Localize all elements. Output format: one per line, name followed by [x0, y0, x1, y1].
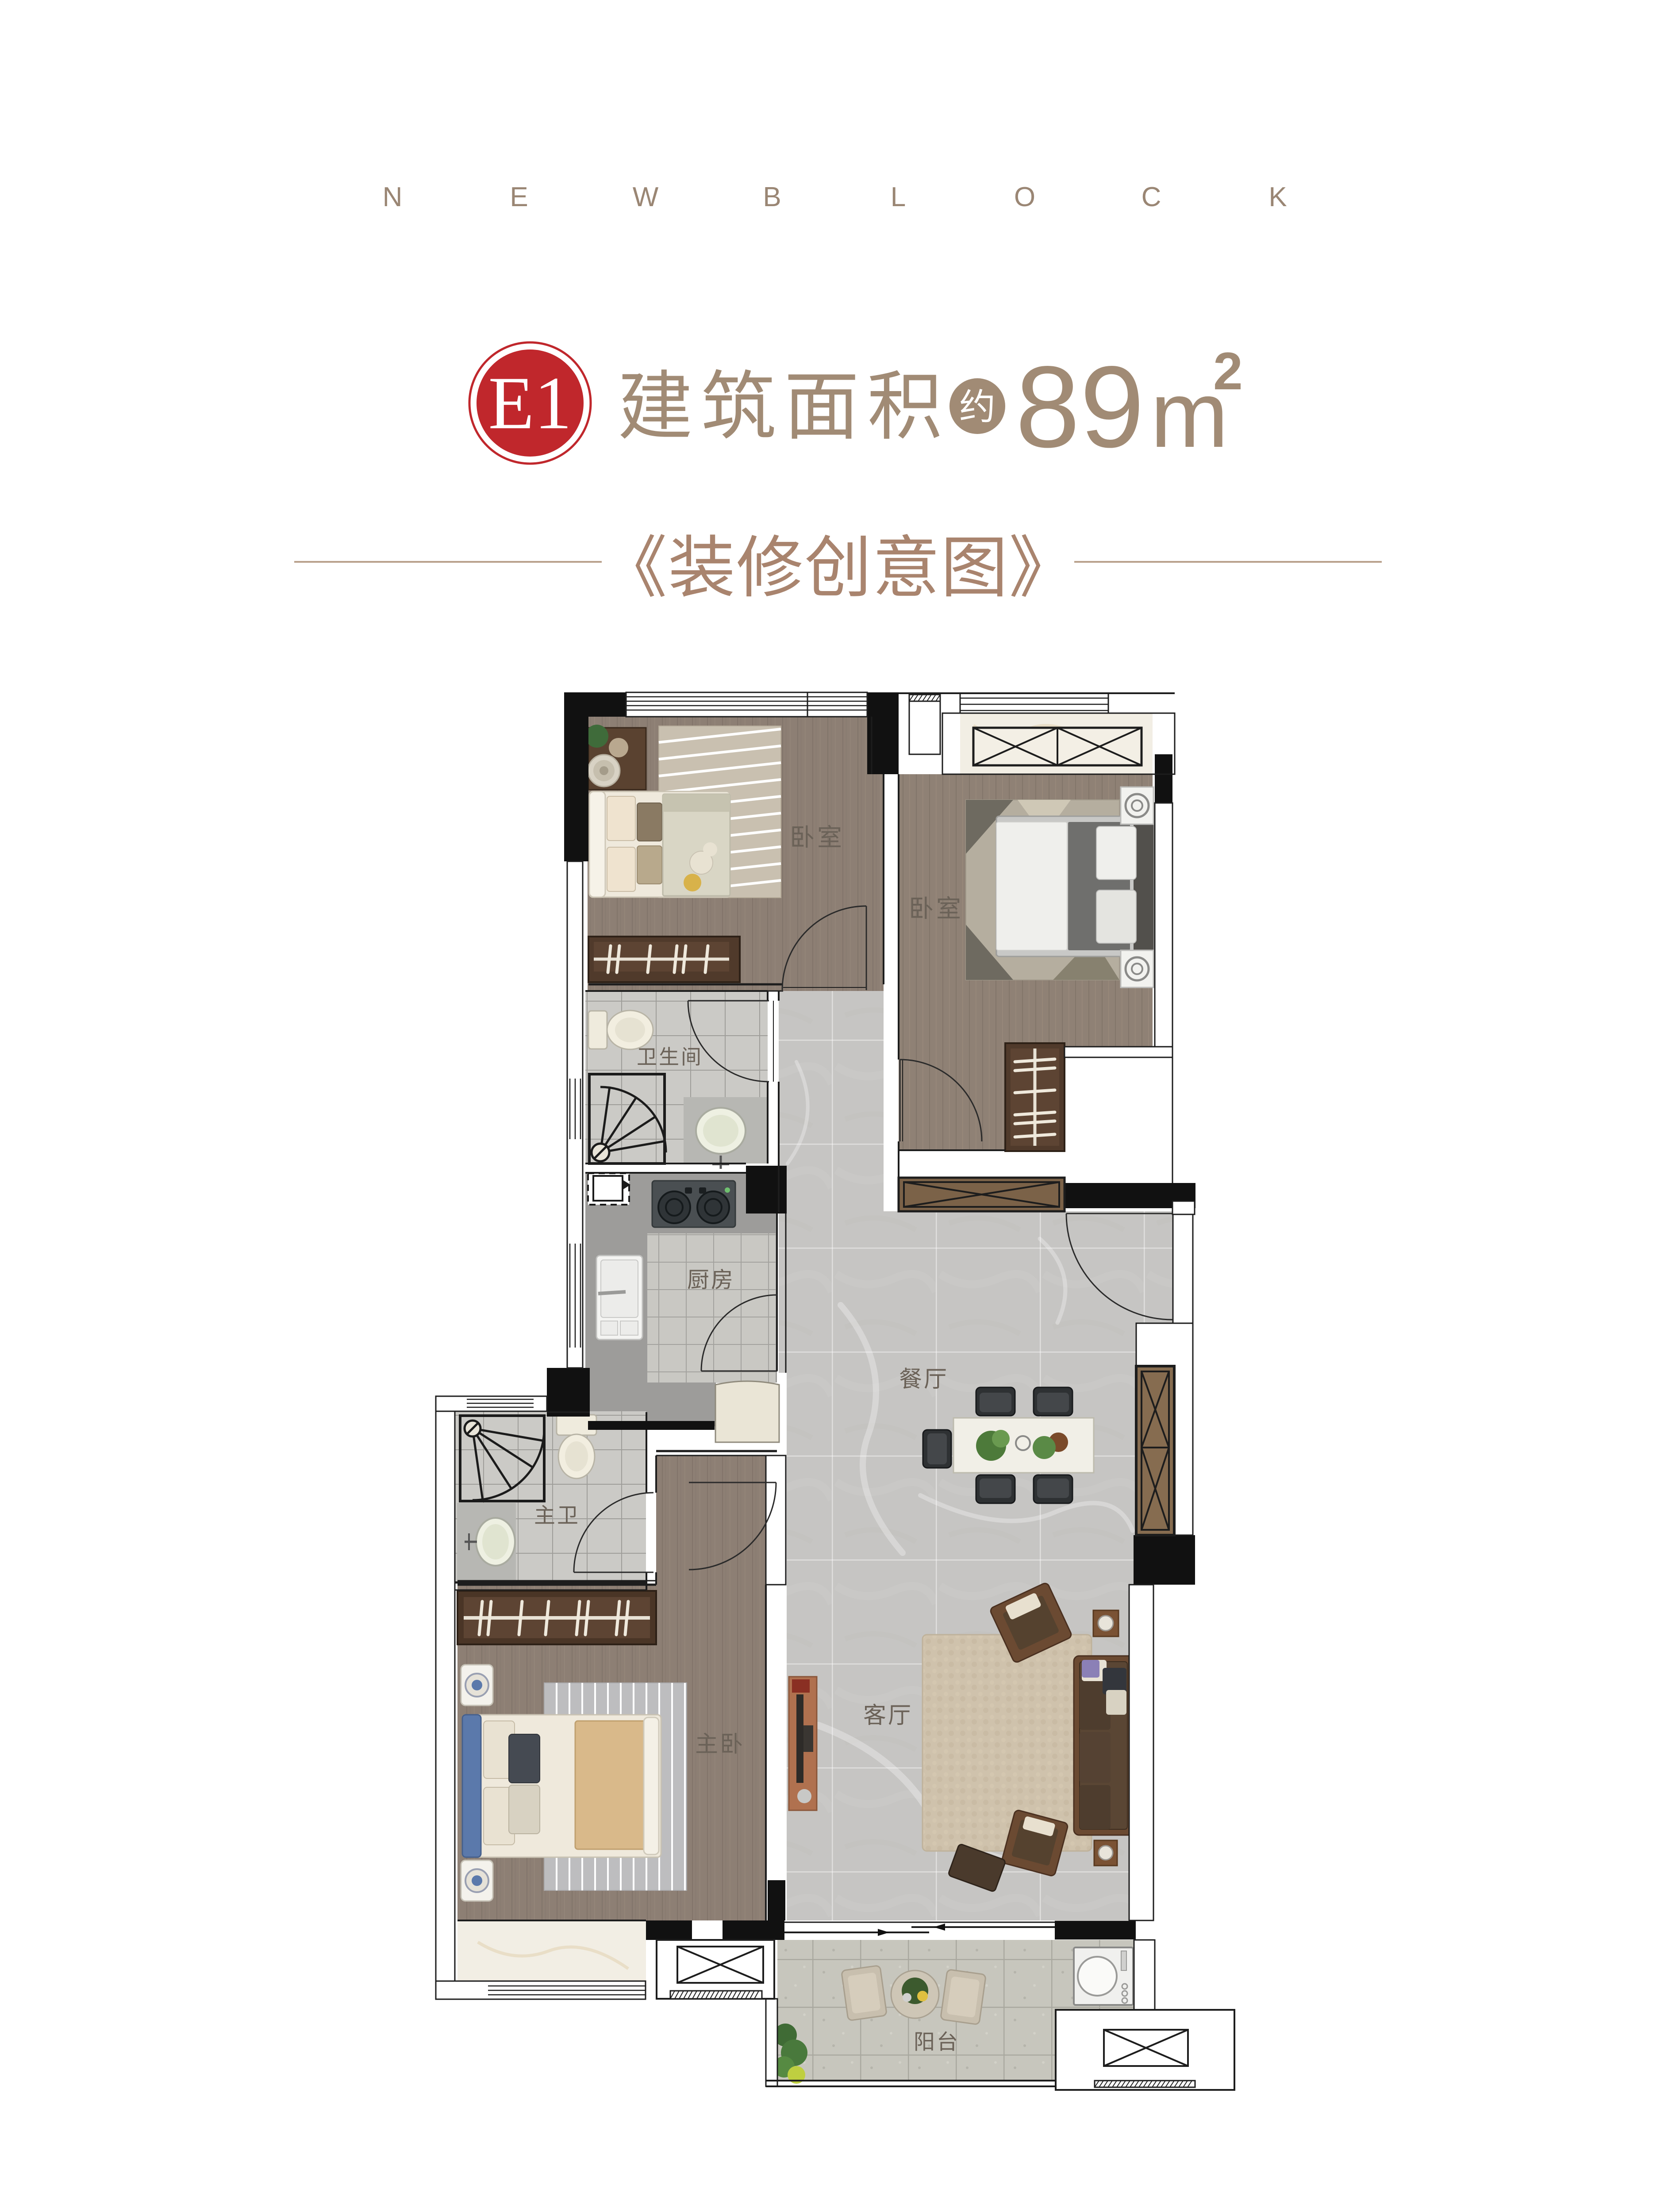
svg-text:L: L [891, 182, 906, 212]
svg-text:K: K [1268, 182, 1287, 212]
svg-text:2: 2 [1213, 342, 1243, 401]
svg-text:N: N [383, 182, 403, 212]
svg-text:E1: E1 [488, 361, 572, 445]
svg-text:B: B [763, 182, 781, 212]
svg-text:O: O [1014, 182, 1035, 212]
svg-text:W: W [633, 182, 659, 212]
svg-text:E: E [510, 182, 528, 212]
svg-text:C: C [1142, 182, 1161, 212]
svg-text:89: 89 [1015, 342, 1144, 472]
